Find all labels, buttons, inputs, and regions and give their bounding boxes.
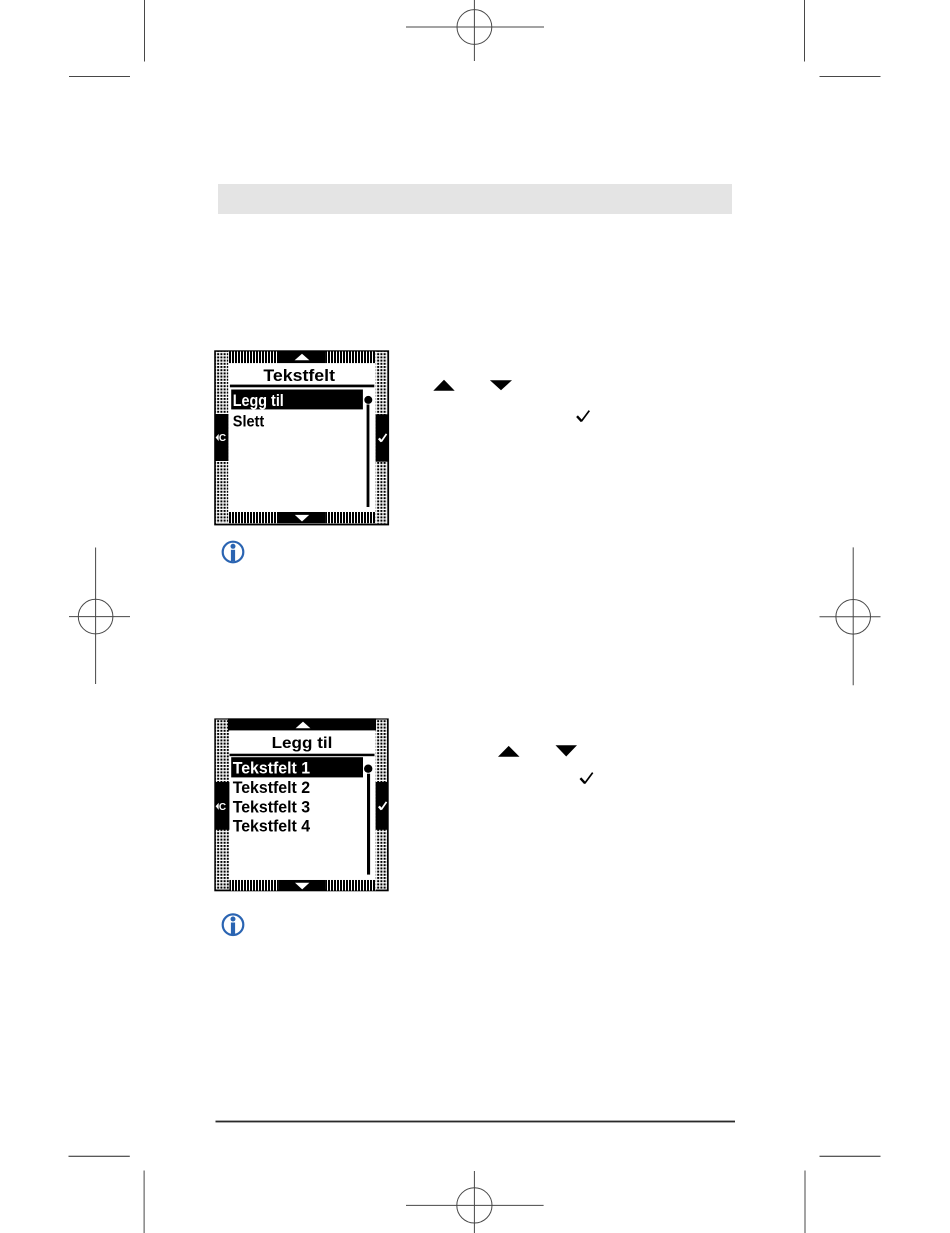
svg-text:Tekstfelt 2: Tekstfelt 2	[233, 778, 310, 797]
svg-text:C: C	[219, 802, 226, 813]
svg-text:Tekstfelt: Tekstfelt	[263, 366, 335, 385]
svg-text:Tekstfelt 1: Tekstfelt 1	[233, 758, 310, 777]
svg-text:Tekstfelt 3: Tekstfelt 3	[233, 797, 310, 816]
svg-text:Legg til: Legg til	[233, 391, 284, 410]
svg-text:C: C	[219, 433, 226, 444]
svg-text:Tekstfelt 4: Tekstfelt 4	[233, 817, 311, 836]
svg-text:Slett: Slett	[233, 414, 265, 431]
svg-text:Legg til: Legg til	[272, 735, 333, 752]
